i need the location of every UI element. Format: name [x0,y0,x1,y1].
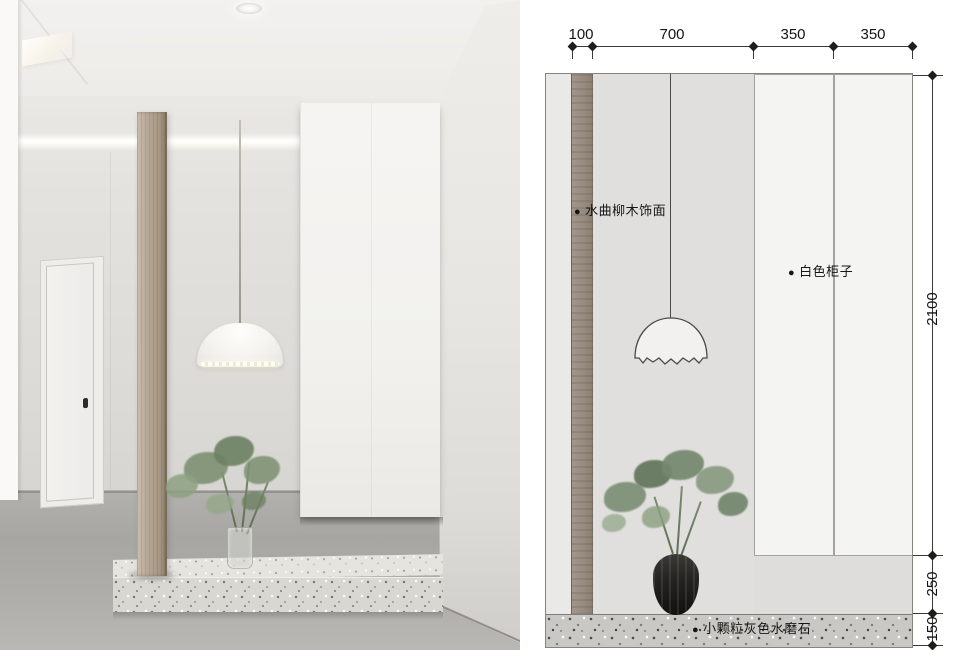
reference-photo [0,0,520,650]
dimension-marker [908,42,918,52]
drawing-pendant-cord [670,74,671,318]
design-board: ●水曲柳木饰面 ●白色柜子 ●小颗粒灰色水磨石 100 700 350 350 [0,0,960,650]
pendant-lamp-drawing [633,314,709,368]
glass-vase [227,527,253,569]
dimension-marker [928,71,938,81]
cabinet-door-seam [371,103,372,517]
white-floating-cabinet [300,103,440,517]
dimension-line [572,46,913,47]
elevation-drawing: ●水曲柳木饰面 ●白色柜子 ●小颗粒灰色水磨石 [545,73,913,648]
pendant-lamp-lit-rim [201,362,279,366]
callout-label: 小颗粒灰色水磨石 [703,621,811,636]
pendant-cord [239,120,241,326]
drawing-wall-return [546,74,571,614]
dim-label-350a: 350 [771,26,815,43]
bullet-icon: ● [788,267,795,279]
wall-edge-shadow [18,0,23,500]
cabinet-under-shadow [300,517,443,526]
callout-white-cabinet: ●白色柜子 [788,261,853,280]
dimension-marker [588,42,598,52]
callout-terrazzo: ●小颗粒灰色水磨石 [692,618,811,637]
callout-label: 水曲柳木饰面 [585,203,666,218]
terrazzo-platform-front [113,577,443,612]
wall-seam [110,152,111,494]
wood-column [137,112,167,576]
dim-label-100: 100 [559,26,603,43]
callout-wood-veneer: ●水曲柳木饰面 [574,200,666,219]
dimension-marker [749,42,759,52]
callout-label: 白色柜子 [799,264,853,279]
dim-label-2100: 2100 [920,292,946,326]
drawing-wood-veneer-strip [571,74,593,614]
platform-floor-shadow [113,612,443,620]
bullet-icon: ● [574,206,581,218]
hallway-door [46,262,94,501]
recessed-downlight [236,3,262,14]
lit-wall-edge [0,0,18,500]
dim-label-700: 700 [650,26,694,43]
right-side-wall [437,0,520,650]
door-handle [83,398,88,408]
dimension-marker [928,551,938,561]
dim-label-350b: 350 [851,26,895,43]
drawing-wall-below-cabinet [754,556,913,614]
dimension-marker [568,42,578,52]
dim-label-150: 150 [920,612,946,646]
drawing-cabinet-door-2 [834,74,913,556]
drawing-cabinet-door-1 [754,74,834,556]
dim-label-250: 250 [920,567,946,601]
dimension-marker [829,42,839,52]
bullet-icon: ● [692,624,699,636]
hallway-door-frame [40,256,104,508]
